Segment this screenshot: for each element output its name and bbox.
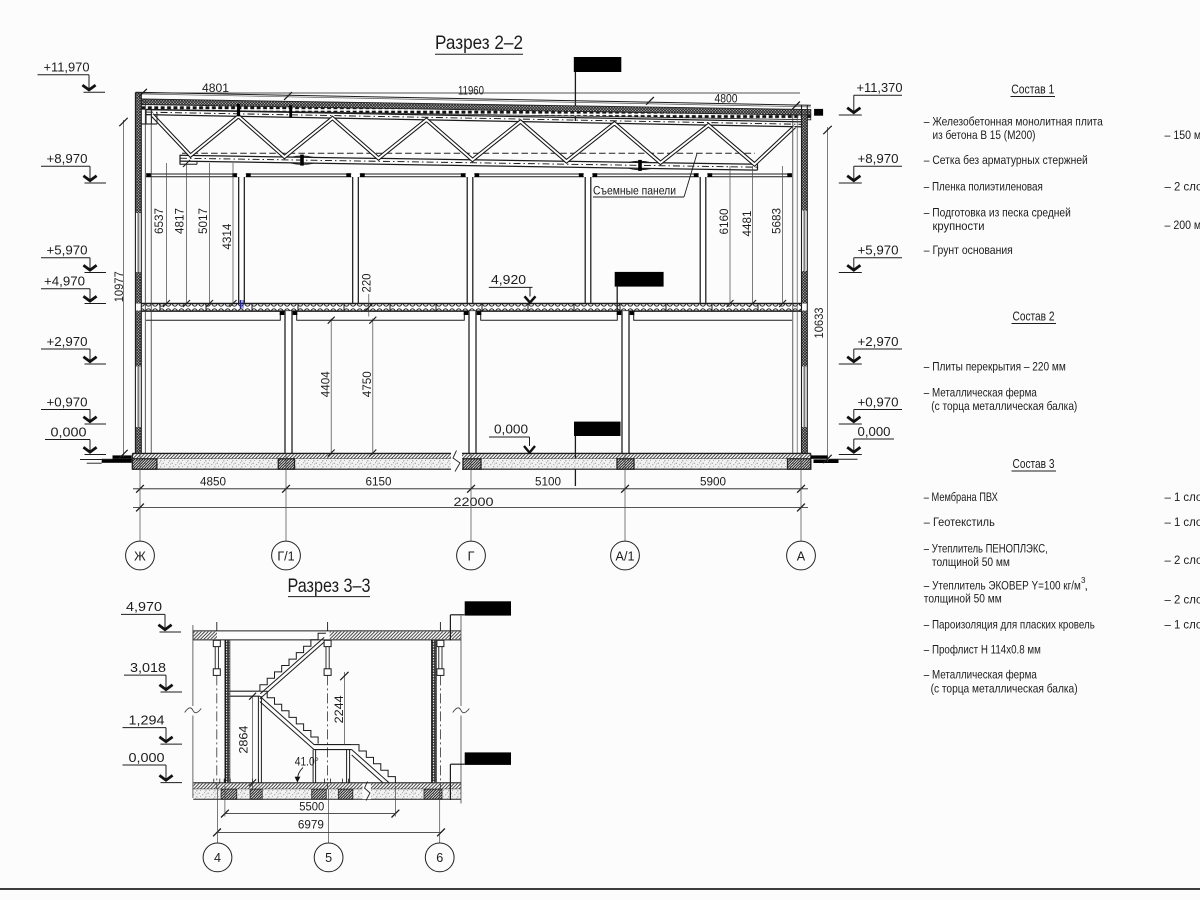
svg-text:Съемные панели: Съемные панели [593, 183, 676, 197]
svg-text:Состав 3: Состав 3 [1013, 456, 1055, 471]
svg-text:,: , [1085, 578, 1088, 592]
svg-text:5: 5 [325, 851, 332, 865]
svg-text:крупности: крупности [933, 219, 985, 233]
svg-text:5017: 5017 [196, 208, 210, 234]
svg-text:4404: 4404 [319, 371, 333, 397]
svg-text:Разрез 3–3: Разрез 3–3 [288, 575, 371, 597]
svg-text:5100: 5100 [535, 476, 561, 488]
svg-text:– Металлическая ферма: – Металлическая ферма [924, 668, 1037, 682]
svg-text:Г/1: Г/1 [277, 549, 294, 563]
svg-text:(с торца металлическая балка): (с торца металлическая балка) [931, 681, 1078, 695]
svg-text:Разрез 2–2: Разрез 2–2 [435, 32, 523, 54]
svg-text:+4,970: +4,970 [44, 275, 85, 289]
svg-text:толщиной 50 мм: толщиной 50 мм [932, 555, 1010, 569]
svg-text:+0,970: +0,970 [858, 395, 899, 409]
svg-text:– 2 слоя: – 2 слоя [1165, 553, 1200, 567]
svg-text:41.0°: 41.0° [295, 754, 319, 768]
svg-text:– Утеплитель ЭКОВЕР Y=100 кг/м: – Утеплитель ЭКОВЕР Y=100 кг/м [924, 578, 1081, 592]
svg-text:0,000: 0,000 [129, 751, 165, 765]
svg-text:4: 4 [214, 851, 221, 865]
svg-text:Состав 2: Состав 2 [1013, 308, 1055, 323]
svg-text:10633: 10633 [812, 307, 826, 338]
svg-text:– 1 слой: – 1 слой [1165, 618, 1200, 632]
svg-text:+5,970: +5,970 [47, 244, 88, 258]
svg-text:22000: 22000 [454, 497, 494, 509]
svg-text:4817: 4817 [173, 208, 187, 234]
svg-text:– Плиты перекрытия – 220 мм: – Плиты перекрытия – 220 мм [924, 359, 1066, 373]
svg-text:6160: 6160 [717, 208, 731, 234]
svg-text:4481: 4481 [740, 211, 754, 237]
svg-text:4850: 4850 [200, 476, 226, 488]
svg-text:4314: 4314 [220, 223, 234, 249]
svg-text:+2,970: +2,970 [858, 335, 899, 349]
svg-text:– Мембрана ПВХ: – Мембрана ПВХ [924, 490, 998, 504]
svg-text:6: 6 [436, 851, 443, 865]
svg-text:3,018: 3,018 [130, 661, 166, 675]
svg-text:+11,970: +11,970 [44, 61, 90, 75]
svg-text:– Сетка без арматурных стержне: – Сетка без арматурных стержней [924, 153, 1088, 167]
svg-text:0,000: 0,000 [494, 423, 528, 437]
svg-text:– 150 мм: – 150 мм [1165, 128, 1200, 142]
svg-text:– Пароизоляция для пласких кро: – Пароизоляция для пласких кровель [924, 618, 1095, 632]
svg-text:– Металлическая ферма: – Металлическая ферма [924, 386, 1037, 400]
svg-text:4,920: 4,920 [491, 273, 526, 287]
svg-text:Состав 1: Состав 1 [1011, 81, 1054, 96]
svg-text:2244: 2244 [332, 695, 346, 723]
svg-text:– 2 слоя: – 2 слоя [1165, 179, 1200, 193]
svg-text:10977: 10977 [112, 271, 126, 302]
svg-text:5683: 5683 [770, 208, 784, 234]
svg-text:5900: 5900 [700, 476, 726, 488]
svg-text:0,000: 0,000 [858, 425, 891, 439]
svg-text:4750: 4750 [360, 371, 374, 397]
svg-text:4,970: 4,970 [126, 600, 162, 614]
svg-text:+5,970: +5,970 [858, 244, 899, 258]
svg-text:11960: 11960 [458, 86, 484, 98]
svg-text:1,294: 1,294 [129, 713, 165, 727]
svg-text:– Геотекстиль: – Геотекстиль [924, 515, 995, 529]
svg-text:(с торца металлическая балка): (с торца металлическая балка) [931, 399, 1077, 413]
svg-text:0,000: 0,000 [51, 425, 87, 439]
svg-text:2864: 2864 [237, 725, 251, 753]
svg-text:220: 220 [360, 273, 374, 292]
svg-text:+2,970: +2,970 [47, 335, 88, 349]
svg-text:А/1: А/1 [616, 549, 635, 563]
svg-text:6150: 6150 [366, 476, 392, 488]
svg-text:+0,970: +0,970 [47, 395, 88, 409]
svg-text:– 1 слой: – 1 слой [1165, 490, 1200, 504]
svg-text:– Утеплитель ПЕНОПЛЭКС,: – Утеплитель ПЕНОПЛЭКС, [924, 541, 1048, 555]
svg-text:4801: 4801 [202, 83, 229, 95]
svg-text:– Пленка полиэтиленовая: – Пленка полиэтиленовая [924, 179, 1043, 193]
svg-text:Г: Г [468, 549, 475, 563]
svg-text:6979: 6979 [298, 819, 324, 831]
svg-text:– Железобетонная монолитная п: – Железобетонная монолитная плита [924, 114, 1103, 128]
svg-text:А: А [797, 549, 806, 563]
svg-text:– 200 мм: – 200 мм [1165, 218, 1200, 232]
svg-text:из бетона В 15 (М200): из бетона В 15 (М200) [933, 128, 1036, 142]
svg-text:– 1 слой: – 1 слой [1165, 515, 1200, 529]
svg-text:– Подготовка из песка средней: – Подготовка из песка средней [924, 206, 1071, 220]
svg-text:Ж: Ж [134, 549, 146, 563]
svg-text:4800: 4800 [715, 93, 738, 105]
svg-text:– 2 слоя: – 2 слоя [1165, 593, 1200, 607]
svg-text:толщиной 50 мм: толщиной 50 мм [924, 592, 1002, 606]
svg-text:6537: 6537 [152, 208, 166, 234]
svg-text:5500: 5500 [299, 801, 324, 813]
svg-text:– Профлист Н 114х0.8 мм: – Профлист Н 114х0.8 мм [924, 643, 1041, 657]
svg-text:+11,370: +11,370 [857, 81, 903, 95]
svg-text:+8,970: +8,970 [858, 152, 899, 166]
svg-text:+8,970: +8,970 [47, 152, 88, 166]
svg-text:– Грунт основания: – Грунт основания [924, 243, 1013, 257]
